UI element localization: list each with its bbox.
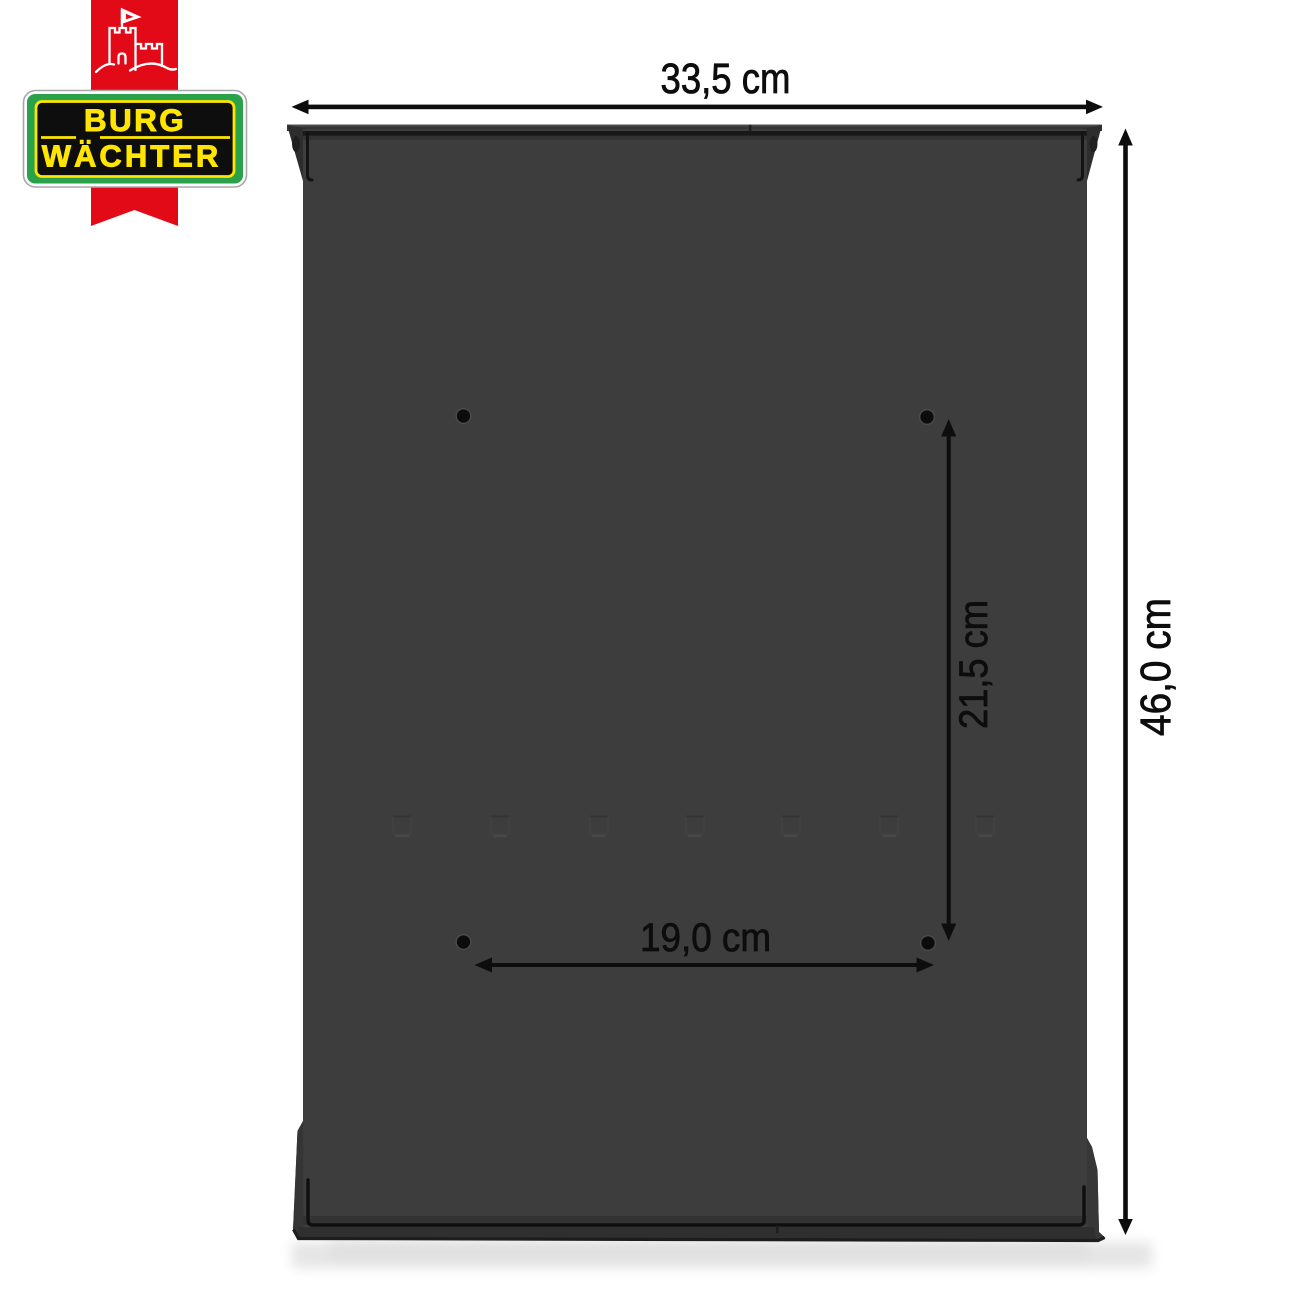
svg-text:46,0 cm: 46,0 cm xyxy=(1132,598,1180,736)
svg-text:21,5 cm: 21,5 cm xyxy=(952,600,996,729)
svg-text:19,0 cm: 19,0 cm xyxy=(640,916,771,960)
svg-text:BURG: BURG xyxy=(84,102,186,138)
svg-text:33,5 cm: 33,5 cm xyxy=(661,55,791,103)
svg-text:WÄCHTER: WÄCHTER xyxy=(42,139,221,174)
